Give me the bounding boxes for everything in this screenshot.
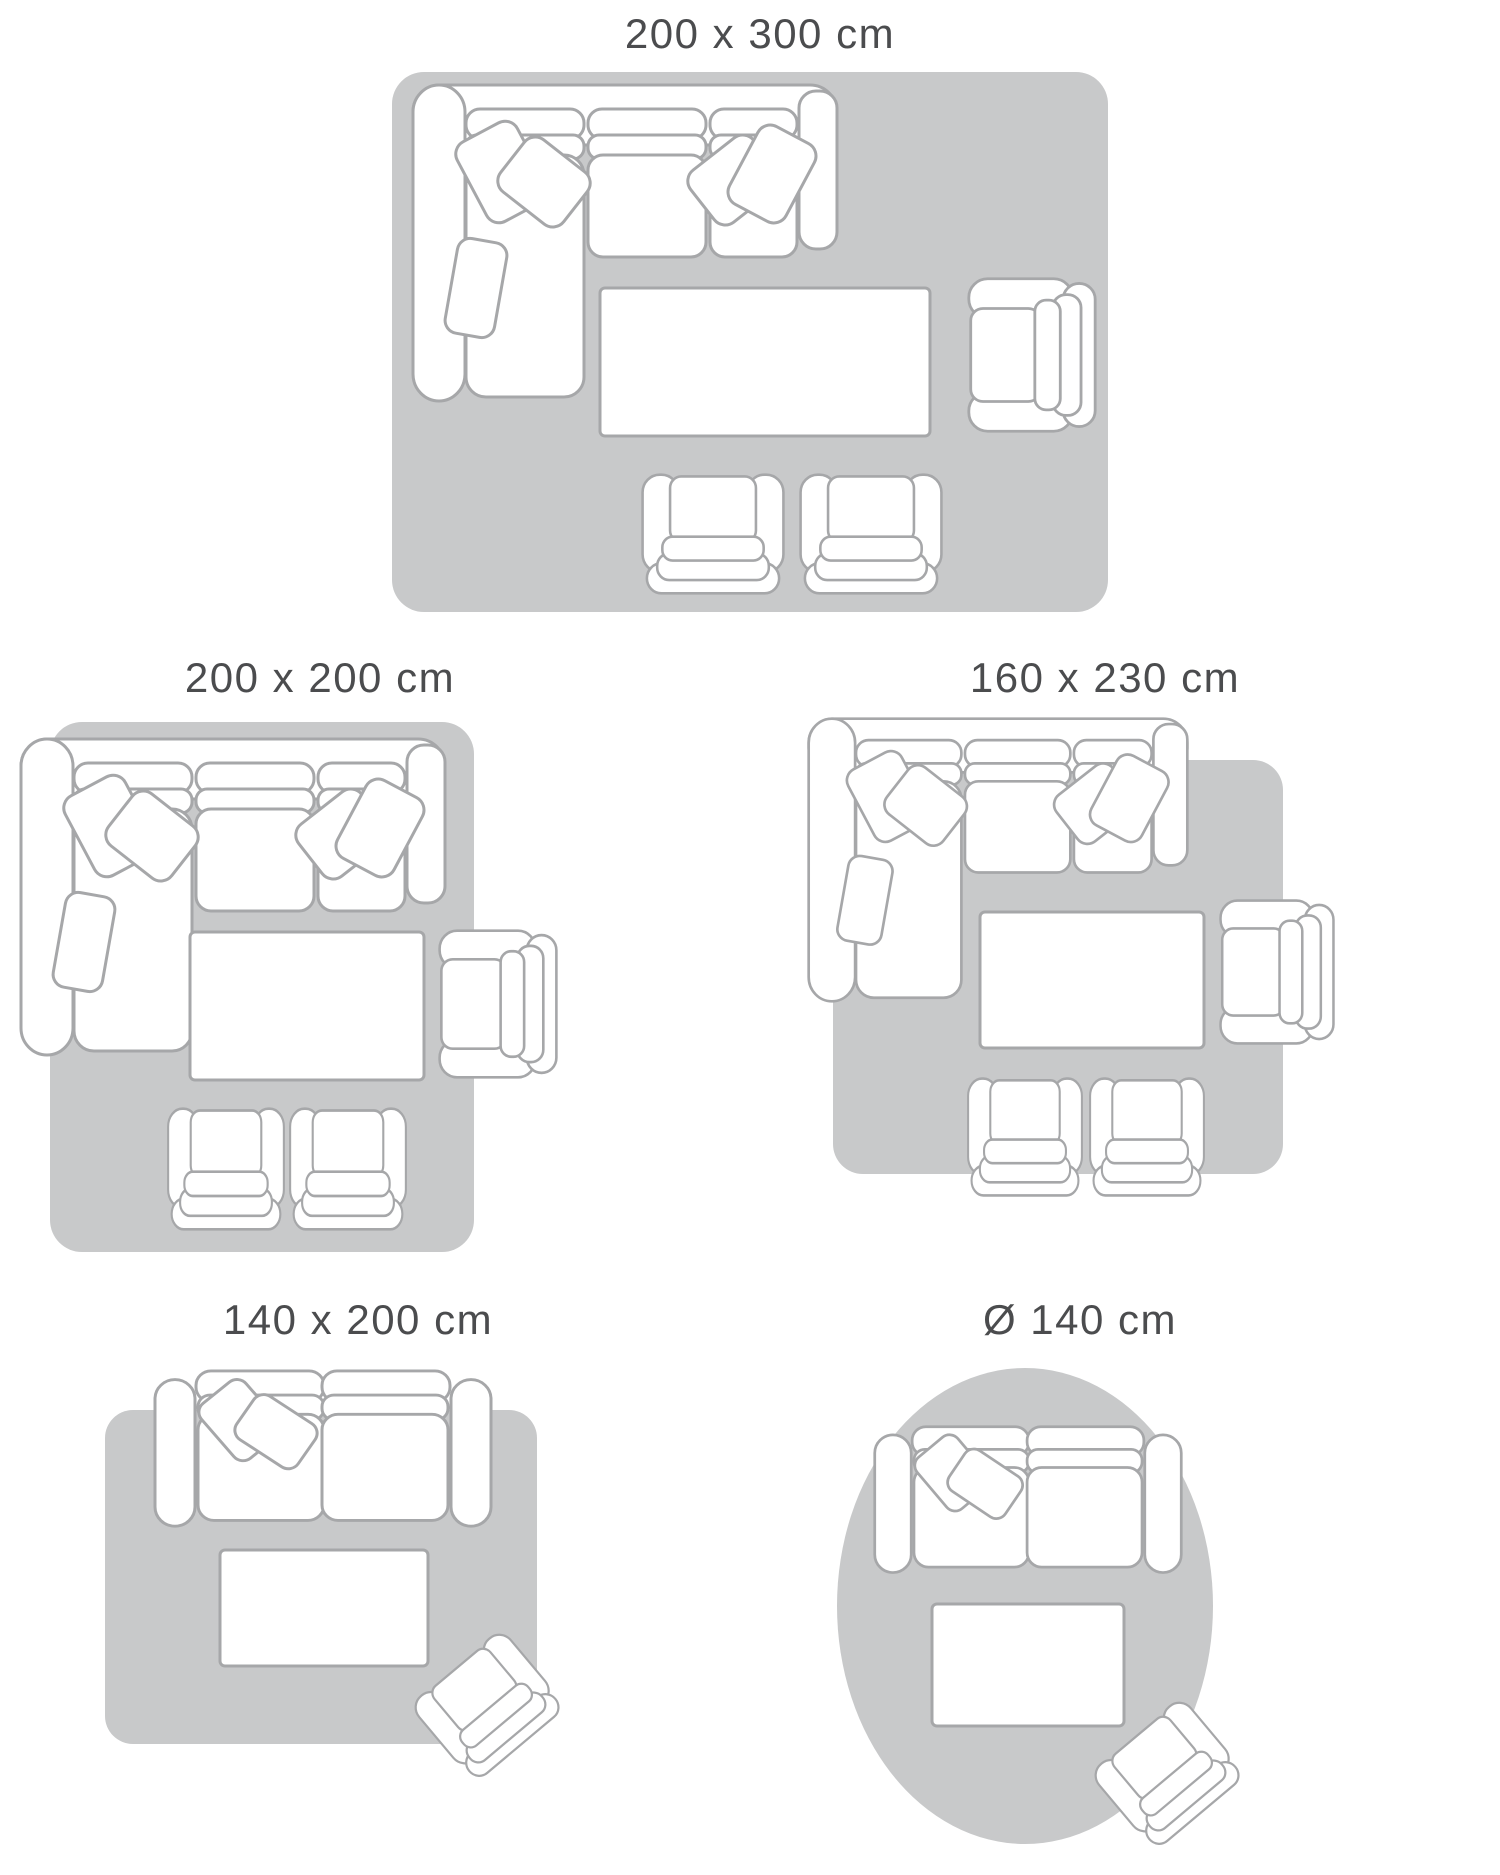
loveseat-sofa-icon xyxy=(875,1427,1182,1573)
rug-diagram-140x200 xyxy=(105,1371,566,1783)
armchair-icon xyxy=(290,1109,406,1230)
size-label-200x300: 200 x 300 cm xyxy=(625,10,895,58)
armchair-icon xyxy=(968,1079,1082,1196)
coffee-table-icon xyxy=(190,932,424,1080)
size-label-160x230: 160 x 230 cm xyxy=(970,654,1240,702)
rug-diagram-d140 xyxy=(837,1368,1246,1851)
armchair-icon xyxy=(969,279,1095,431)
coffee-table-icon xyxy=(220,1550,428,1666)
rug-diagram-200x200 xyxy=(21,722,556,1252)
rug-diagram-160x230 xyxy=(809,719,1334,1196)
armchair-icon xyxy=(643,475,784,594)
rug-size-diagrams xyxy=(0,0,1500,1875)
size-label-d140: Ø 140 cm xyxy=(983,1296,1177,1344)
coffee-table-icon xyxy=(600,288,930,436)
coffee-table-icon xyxy=(932,1604,1124,1726)
armchair-icon xyxy=(1090,1079,1204,1196)
armchair-icon xyxy=(1221,901,1334,1044)
armchair-icon xyxy=(168,1109,284,1230)
armchair-icon xyxy=(801,475,942,594)
coffee-table-icon xyxy=(980,912,1204,1048)
armchair-icon xyxy=(440,931,557,1078)
size-label-140x200: 140 x 200 cm xyxy=(223,1296,493,1344)
rug-diagram-200x300 xyxy=(392,72,1108,612)
rug-size-guide: 200 x 300 cm 200 x 200 cm 160 x 230 cm 1… xyxy=(0,0,1500,1875)
loveseat-sofa-icon xyxy=(155,1371,491,1526)
size-label-200x200: 200 x 200 cm xyxy=(185,654,455,702)
